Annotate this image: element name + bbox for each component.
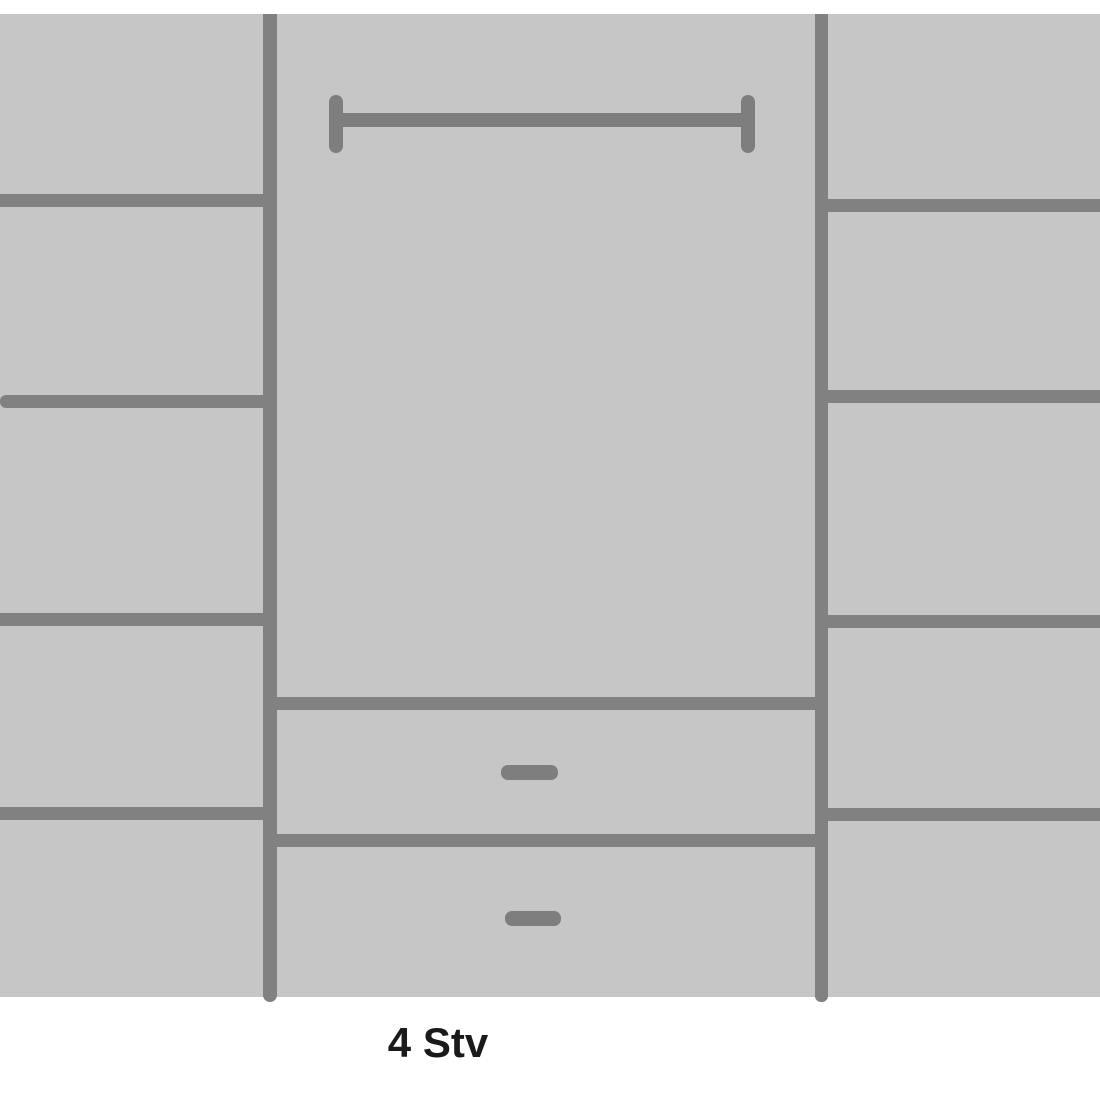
clothes-rail-right-cap: [741, 95, 755, 153]
right-shelf-line-3: [815, 615, 1100, 628]
left-vertical-divider: [263, 14, 277, 1002]
right-vertical-divider: [815, 14, 828, 1002]
drawer-1-handle: [501, 765, 558, 780]
left-shelf-line-2: [0, 395, 277, 408]
drawer-2-handle: [505, 911, 561, 926]
wardrobe-diagram: 4 Stv: [0, 0, 1100, 1100]
clothes-rail-left-cap: [329, 95, 343, 153]
drawer-2-top-line: [277, 834, 815, 847]
left-shelf-line-3: [0, 613, 277, 626]
left-shelf-line-1: [0, 194, 277, 207]
right-shelf-line-2: [815, 390, 1100, 403]
right-shelf-line-1: [815, 199, 1100, 212]
right-shelf-line-4: [815, 808, 1100, 821]
clothes-rail-bar: [336, 113, 748, 127]
left-shelf-line-4: [0, 807, 277, 820]
drawer-1-top-line: [277, 697, 815, 710]
wardrobe-body-panel: [0, 14, 1100, 997]
quantity-label: 4 Stv: [388, 1020, 488, 1066]
